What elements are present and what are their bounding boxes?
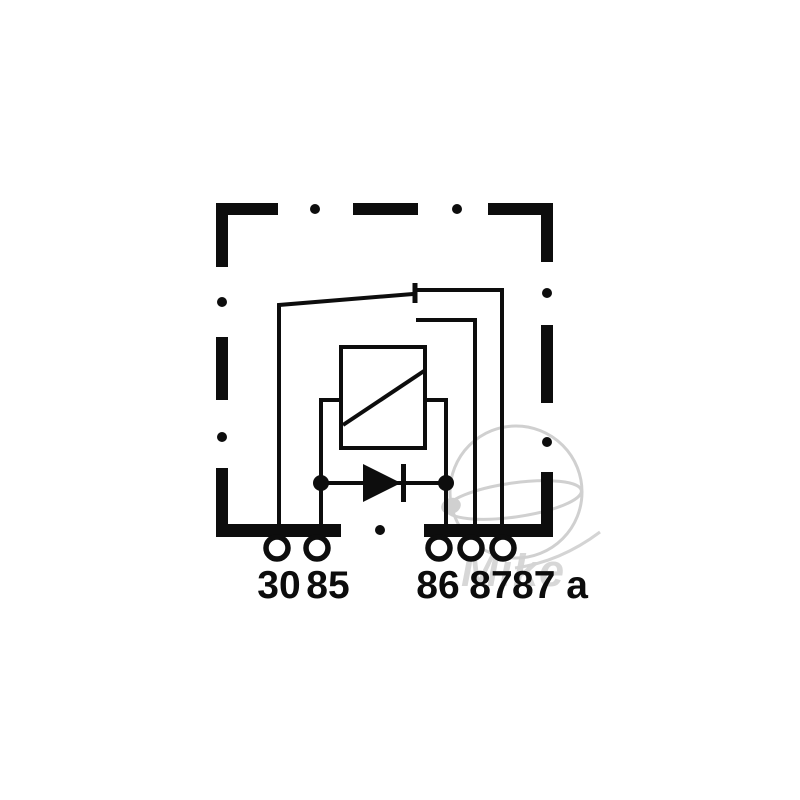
case-dot xyxy=(452,204,462,214)
case-dash xyxy=(216,203,228,267)
case-dot xyxy=(217,297,227,307)
watermark-swoosh xyxy=(515,532,600,568)
case-dot xyxy=(542,437,552,447)
pin-87 xyxy=(460,537,482,559)
case-dot xyxy=(542,288,552,298)
case-dash xyxy=(353,203,418,215)
case-dot xyxy=(217,432,227,442)
pin-85 xyxy=(306,537,328,559)
junction-dot-86 xyxy=(438,475,454,491)
terminal-label-87a: 87 a xyxy=(512,566,588,605)
diode-cathode-bar xyxy=(401,464,406,502)
case-dot xyxy=(310,204,320,214)
terminal-label-87: 87 xyxy=(469,566,512,605)
watermark-ring xyxy=(444,474,583,527)
diode-triangle xyxy=(363,464,401,502)
junction-dot-85 xyxy=(313,475,329,491)
pin-86 xyxy=(428,537,450,559)
case-dash xyxy=(216,337,228,400)
case-dash xyxy=(541,203,553,262)
case-dash xyxy=(541,325,553,403)
terminal-label-85: 85 xyxy=(306,566,349,605)
pin-30 xyxy=(266,537,288,559)
terminal-label-30: 30 xyxy=(257,566,300,605)
case-dot xyxy=(375,525,385,535)
relay-schematic-page: Mike xyxy=(0,0,800,800)
terminal-label-86: 86 xyxy=(416,566,459,605)
wire-87a xyxy=(416,290,502,530)
terminal-pins xyxy=(266,537,514,559)
relay-circuit-diagram xyxy=(0,0,800,800)
pin-87a xyxy=(492,537,514,559)
